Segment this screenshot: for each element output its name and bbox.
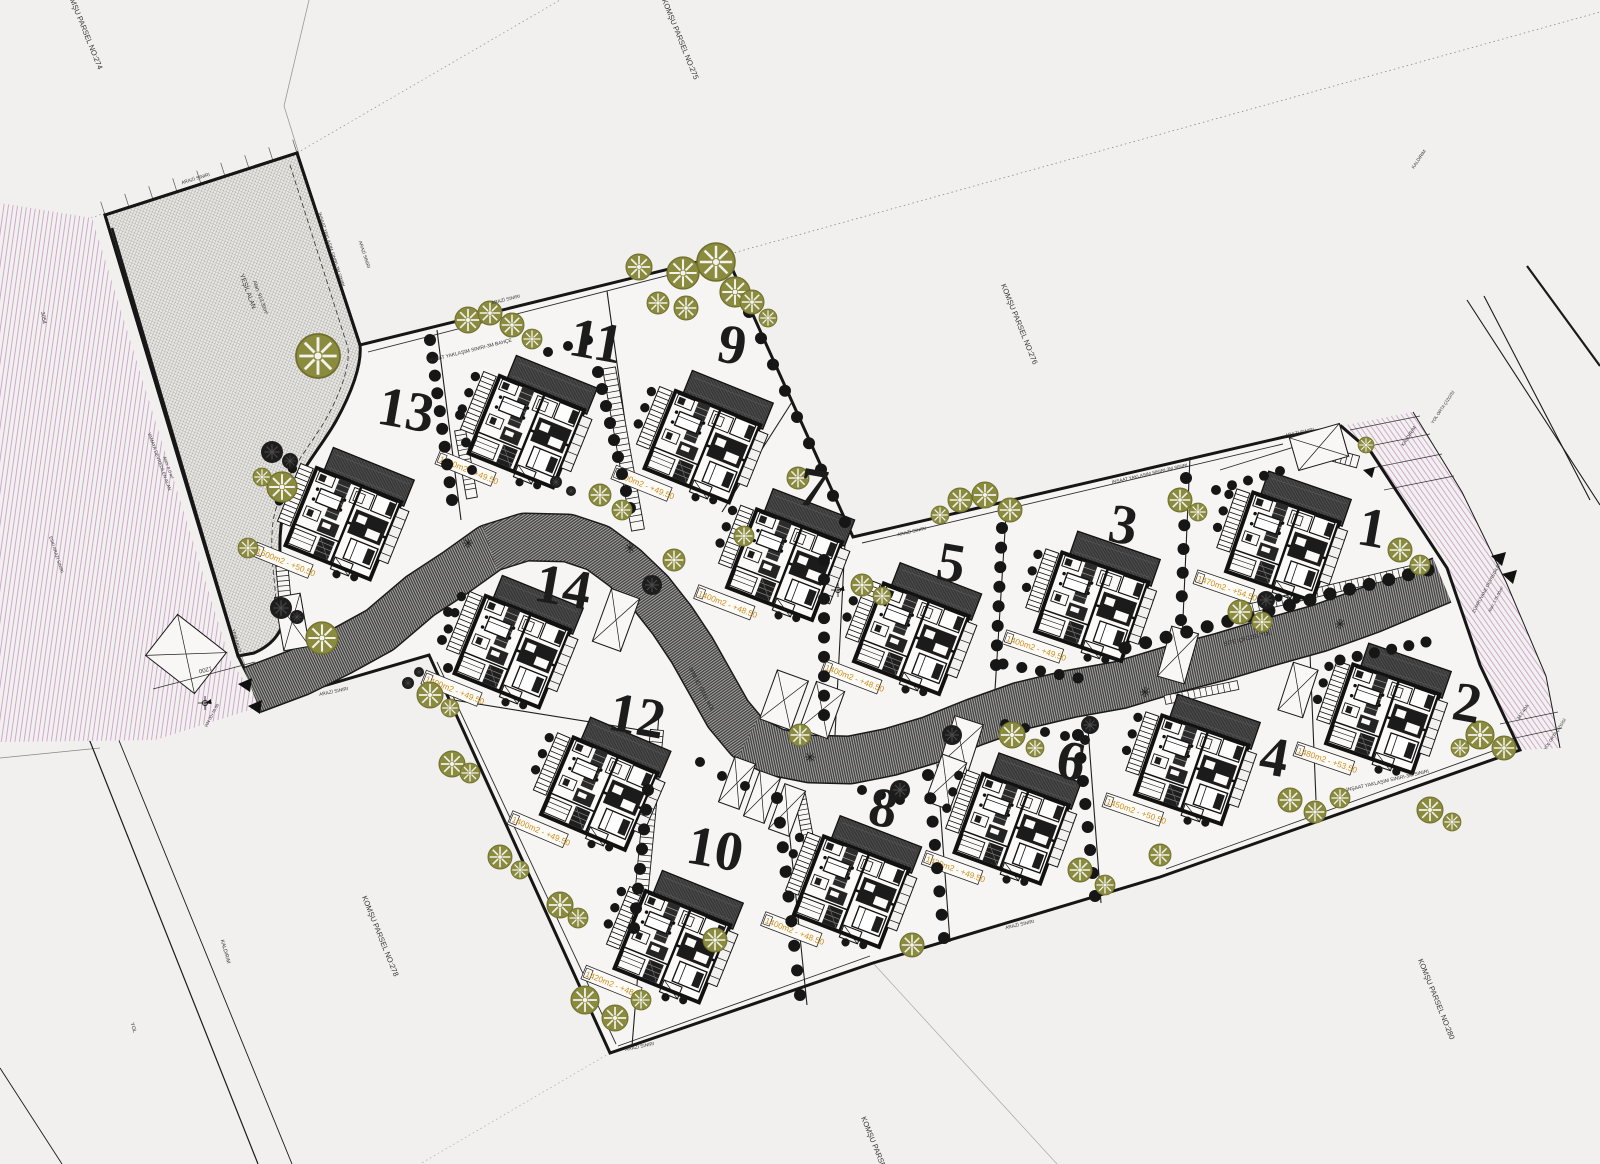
svg-text:10: 10: [682, 814, 748, 885]
svg-text:14: 14: [530, 552, 596, 623]
svg-text:13: 13: [373, 375, 439, 446]
svg-text:12: 12: [604, 681, 670, 752]
svg-text:11: 11: [565, 306, 628, 376]
